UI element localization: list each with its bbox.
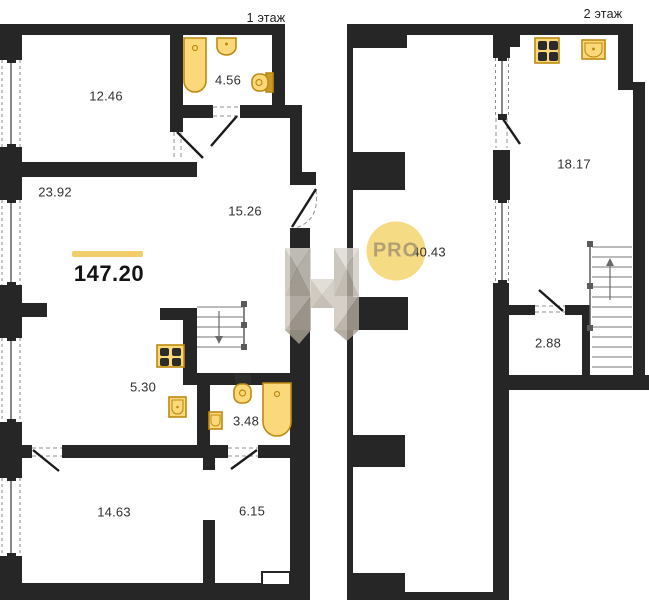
sink-icon (582, 40, 605, 59)
total-area-label: 147.20 (74, 261, 144, 287)
stairs-icon (587, 241, 632, 367)
total-area-accent-bar (72, 251, 143, 257)
room-area-label: 2.88 (535, 336, 561, 351)
room-area-label: 15.26 (228, 204, 262, 219)
stairs-icon (197, 301, 247, 350)
watermark-pro-text: PRO (373, 240, 419, 263)
stove-icon (157, 345, 184, 367)
floor1-walls (0, 24, 316, 600)
room-area-label: 23.92 (38, 185, 72, 200)
toilet-icon (234, 374, 251, 403)
bathtub-icon (263, 383, 291, 436)
sink-icon (209, 412, 222, 429)
floor2-walls (347, 24, 649, 600)
stove-icon (535, 38, 559, 63)
toilet-icon (252, 73, 273, 92)
floor-plan: 1 этаж 2 этаж 12.46 4.56 23.92 15.26 5.3… (0, 0, 649, 600)
room-area-label: 12.46 (89, 89, 123, 104)
room-area-label: 6.15 (239, 504, 265, 519)
floor1-title: 1 этаж (247, 11, 286, 25)
room-area-label: 18.17 (557, 157, 591, 172)
room-area-label: 3.48 (233, 414, 259, 429)
room-area-label: 14.63 (97, 505, 131, 520)
room-area-label: 4.56 (215, 73, 241, 88)
sink-icon (217, 38, 236, 55)
room-area-label: 5.30 (130, 380, 156, 395)
sink-icon (169, 397, 186, 417)
floor2-title: 2 этаж (584, 7, 623, 21)
bathtub-icon (184, 38, 206, 92)
watermark-h-logo (285, 248, 359, 344)
